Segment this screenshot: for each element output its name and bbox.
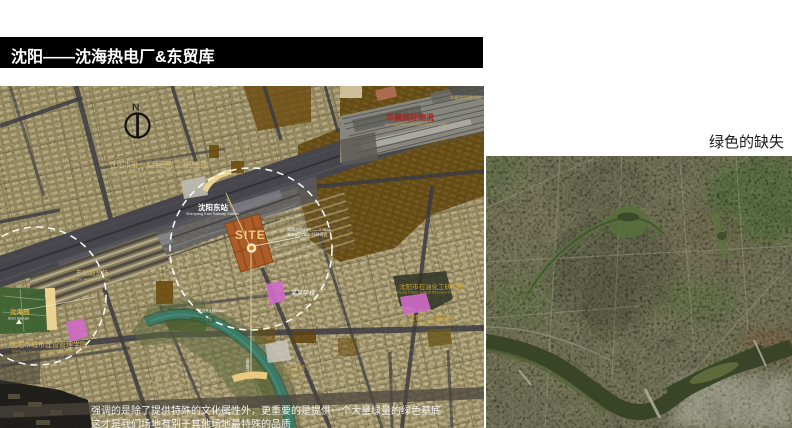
svg-text:Shenyang Petrochemical Researc: Shenyang Petrochemical Research Institut… xyxy=(391,291,461,295)
svg-text:Shenyang Urban Construction Ma: Shenyang Urban Construction Management C… xyxy=(12,350,86,354)
svg-text:强调的是除了提供特殊的文化属性外，更重要的是提供一个大量绿量: 强调的是除了提供特殊的文化属性外，更重要的是提供一个大量绿量的绿色基底 xyxy=(91,404,441,417)
svg-text:SITE: SITE xyxy=(235,228,266,242)
svg-text:Sino-International Smart Logis: Sino-International Smart Logistics Cente… xyxy=(385,123,448,127)
svg-text:乘车或自驾30分钟可达: 乘车或自驾30分钟可达 xyxy=(287,231,327,237)
svg-text:沈阳东站: 沈阳东站 xyxy=(198,202,228,212)
svg-text:Labour Park: Labour Park xyxy=(193,324,211,328)
svg-text:East Station West Goods Yard: East Station West Goods Yard xyxy=(64,278,110,282)
svg-text:距百货大楼600m: 距百货大楼600m xyxy=(198,308,224,313)
svg-text:沈阳市城市建设管理学院: 沈阳市城市建设管理学院 xyxy=(10,340,87,349)
svg-text:华晨国际物流: 华晨国际物流 xyxy=(386,112,434,122)
svg-text:东站前货场: 东站前货场 xyxy=(76,268,109,277)
svg-text:沈阳市第一人民医院（沈阳医院）: 沈阳市第一人民医院（沈阳医院） xyxy=(110,160,215,169)
svg-text:1500m: 1500m xyxy=(245,358,250,372)
svg-text:Shenyang East Railway Station: Shenyang East Railway Station xyxy=(186,212,239,216)
svg-text:Shenyang Hospital Shenyang Fir: Shenyang Hospital Shenyang First People'… xyxy=(109,170,203,175)
svg-text:201 Hospital: 201 Hospital xyxy=(284,372,302,376)
svg-text:沈海园: 沈海园 xyxy=(10,307,30,316)
svg-text:华晨国际物流园: 华晨国际物流园 xyxy=(450,94,482,101)
svg-text:Shenyang Experimental School: Shenyang Experimental School xyxy=(402,322,452,326)
svg-text:N: N xyxy=(132,102,140,114)
svg-text:劳动公园: 劳动公园 xyxy=(190,316,214,324)
svg-text:201医院: 201医院 xyxy=(283,364,305,372)
svg-text:这才是我们场地有别于其他场地最特殊的品质: 这才是我们场地有别于其他场地最特殊的品质 xyxy=(91,418,291,428)
svg-text:某某学校: 某某学校 xyxy=(291,289,315,297)
